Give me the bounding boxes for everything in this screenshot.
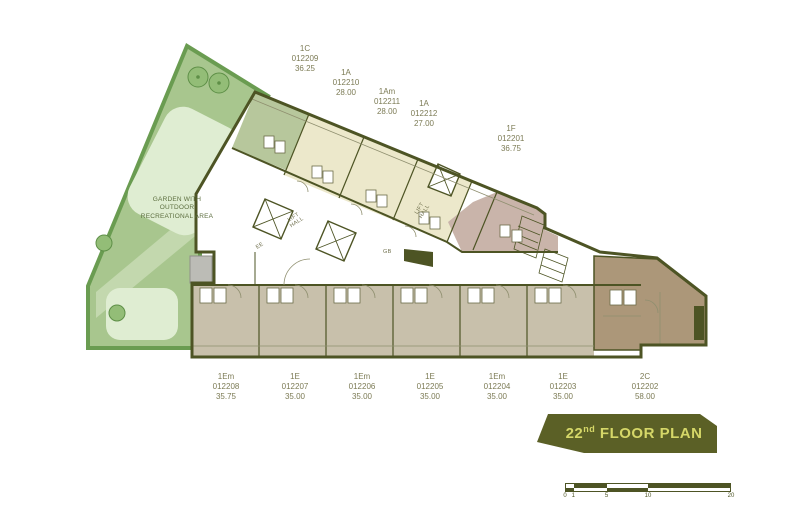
unit-label-1e-012207: 1E01220735.00 [282, 372, 309, 402]
scale-bar-ticks: 0 1 5 10 20 [565, 493, 731, 501]
unit-label-1e-012203: 1E01220335.00 [550, 372, 577, 402]
unit-label-1e-012205: 1E01220535.00 [417, 372, 444, 402]
unit-label-1c: 1C01220936.25 [292, 44, 319, 74]
unit-label-1em-012208: 1Em01220835.75 [213, 372, 240, 402]
floor-plan-banner-text: 22nd FLOOR PLAN [552, 424, 703, 442]
unit-label-1em-012206: 1Em01220635.00 [349, 372, 376, 402]
unit-label-2c: 2C01220258.00 [632, 372, 659, 402]
garden-label: GARDEN WITH OUTDOOR RECREATIONAL AREA [120, 196, 234, 221]
unit-label-1a-012210: 1A01221028.00 [333, 68, 360, 98]
unit-label-1em-012204: 1Em01220435.00 [484, 372, 511, 402]
floor-plan-banner: 22nd FLOOR PLAN [536, 412, 718, 454]
floor-plan-page: GARDEN WITH OUTDOOR RECREATIONAL AREA 1C… [0, 0, 796, 528]
gb-room-label: GB [383, 249, 392, 255]
scale-bar-segments [565, 483, 731, 492]
ledge [190, 256, 212, 283]
unit-label-1a-012212: 1A01221227.00 [411, 99, 438, 129]
scale-bar: 0 1 5 10 20 [565, 483, 731, 501]
unit-label-1am-012211: 1Am01221128.00 [374, 87, 400, 117]
unit-label-1f: 1F01220136.75 [498, 124, 525, 154]
